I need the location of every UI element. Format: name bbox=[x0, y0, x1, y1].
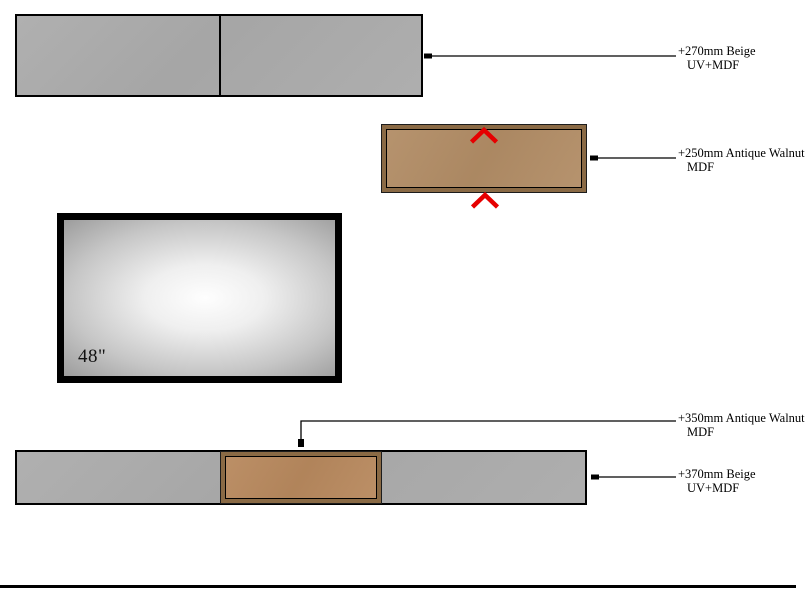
mid-walnut-shelf bbox=[381, 124, 587, 193]
red-chevron-bottom-icon bbox=[473, 195, 498, 207]
arrowhead-350 bbox=[298, 439, 304, 447]
annotation-370: +370mm Beige UV+MDF bbox=[678, 467, 809, 495]
arrowhead-370 bbox=[591, 475, 599, 480]
bottom-walnut-panel bbox=[220, 451, 382, 504]
annotation-270-line1: +270mm Beige bbox=[678, 44, 809, 58]
annotation-370-line2: UV+MDF bbox=[678, 481, 809, 495]
top-beige-shelf bbox=[15, 14, 423, 97]
tv-screen: 48" bbox=[64, 220, 335, 376]
elevation-drawing-canvas: 48" +270mm Beige UV+MDF +250mm Antique W… bbox=[0, 0, 809, 602]
annotation-350-line1: +350mm Antique Walnut bbox=[678, 411, 809, 425]
annotation-250: +250mm Antique Walnut MDF bbox=[678, 146, 809, 174]
annotation-270: +270mm Beige UV+MDF bbox=[678, 44, 809, 72]
annotation-250-line2: MDF bbox=[678, 160, 809, 174]
annotation-250-line1: +250mm Antique Walnut bbox=[678, 146, 809, 160]
tv-size-label: 48" bbox=[78, 346, 106, 368]
floor-line bbox=[0, 585, 796, 588]
tv: 48" bbox=[57, 213, 342, 383]
leader-line-350 bbox=[301, 421, 676, 445]
arrowhead-250 bbox=[590, 156, 598, 161]
annotation-350: +350mm Antique Walnut MDF bbox=[678, 411, 809, 439]
top-shelf-door-divider bbox=[219, 16, 221, 95]
annotation-350-line2: MDF bbox=[678, 425, 809, 439]
bottom-walnut-panel-face bbox=[225, 456, 377, 499]
mid-walnut-shelf-face bbox=[386, 129, 582, 188]
annotation-370-line1: +370mm Beige bbox=[678, 467, 809, 481]
arrowhead-270 bbox=[424, 54, 432, 59]
annotation-270-line2: UV+MDF bbox=[678, 58, 809, 72]
